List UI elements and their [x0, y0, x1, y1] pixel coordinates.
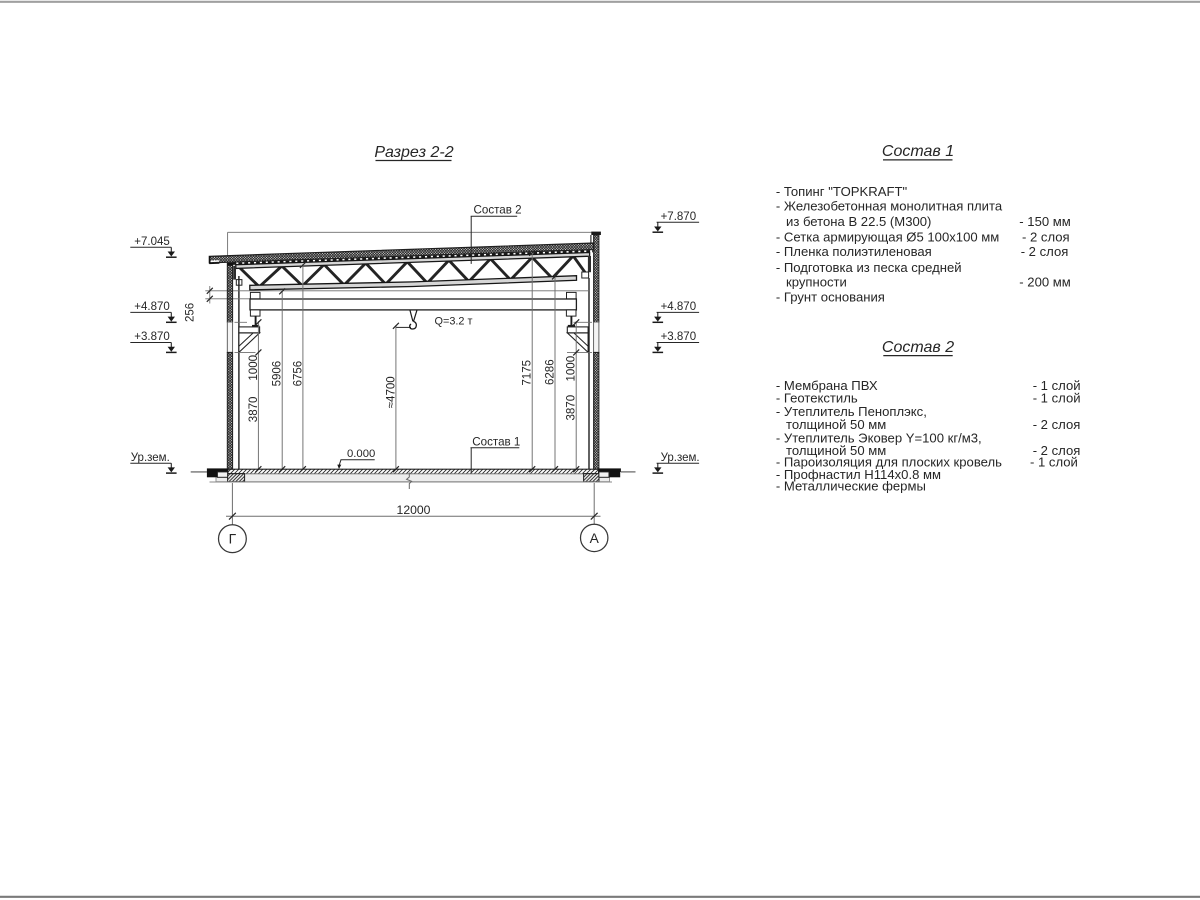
svg-text:Состав 2: Состав 2 — [474, 204, 522, 217]
svg-text:3870: 3870 — [566, 395, 578, 421]
svg-text:+4.870: +4.870 — [134, 301, 170, 313]
svg-text:+4.870: +4.870 — [661, 301, 697, 313]
svg-text:1000: 1000 — [566, 356, 578, 382]
svg-text:- Железобетонная монолитная п: - Железобетонная монолитная плита — [776, 199, 1003, 214]
svg-text:- Топинг "TOPKRAFT": - Топинг "TOPKRAFT" — [776, 184, 908, 199]
svg-text:+3.870: +3.870 — [134, 331, 170, 343]
svg-text:Q=3.2 т: Q=3.2 т — [435, 316, 473, 328]
svg-text:256: 256 — [185, 303, 197, 322]
svg-text:6286: 6286 — [545, 359, 557, 385]
svg-text:7175: 7175 — [522, 360, 534, 386]
svg-text:- 2 слоя: - 2 слоя — [1022, 229, 1070, 244]
svg-text:Г: Г — [229, 532, 237, 547]
svg-text:- Грунт основания: - Грунт основания — [776, 289, 885, 304]
svg-text:- 1 слой: - 1 слой — [1033, 391, 1081, 406]
svg-text:- 150 мм: - 150 мм — [1019, 214, 1071, 229]
svg-text:крупности: крупности — [786, 275, 847, 290]
svg-text:5906: 5906 — [272, 361, 284, 387]
svg-text:- Сетка армирующая Ø5 100х100: - Сетка армирующая Ø5 100х100 мм — [776, 229, 999, 244]
svg-text:Ур.зем.: Ур.зем. — [131, 452, 170, 464]
svg-text:Состав 2: Состав 2 — [882, 339, 954, 356]
svg-text:+7.045: +7.045 — [134, 236, 170, 248]
svg-text:3870: 3870 — [248, 397, 260, 423]
svg-text:Состав 1: Состав 1 — [472, 436, 520, 449]
svg-text:- 2 слоя: - 2 слоя — [1021, 244, 1069, 259]
svg-text:- Металлические фермы: - Металлические фермы — [776, 479, 926, 494]
svg-text:0.000: 0.000 — [347, 448, 375, 460]
svg-text:6756: 6756 — [292, 361, 304, 387]
svg-text:1000: 1000 — [248, 355, 260, 381]
svg-text:- 2 слоя: - 2 слоя — [1033, 417, 1081, 432]
svg-text:Состав 1: Состав 1 — [882, 143, 954, 160]
svg-text:- Пленка полиэтиленовая: - Пленка полиэтиленовая — [776, 244, 932, 259]
svg-text:Разрез 2-2: Разрез 2-2 — [374, 144, 453, 161]
svg-text:- Подготовка из песка средней: - Подготовка из песка средней — [776, 260, 962, 275]
svg-text:+3.870: +3.870 — [661, 331, 697, 343]
svg-text:А: А — [590, 531, 600, 546]
svg-text:12000: 12000 — [397, 503, 431, 517]
svg-text:Ур.зем.: Ур.зем. — [661, 452, 700, 464]
svg-text:из бетона В 22.5 (М300): из бетона В 22.5 (М300) — [786, 214, 931, 229]
svg-text:+7.870: +7.870 — [661, 211, 697, 223]
svg-text:≈4700: ≈4700 — [385, 376, 397, 408]
svg-text:- 200 мм: - 200 мм — [1019, 275, 1071, 290]
svg-text:- 1 слой: - 1 слой — [1030, 455, 1078, 470]
